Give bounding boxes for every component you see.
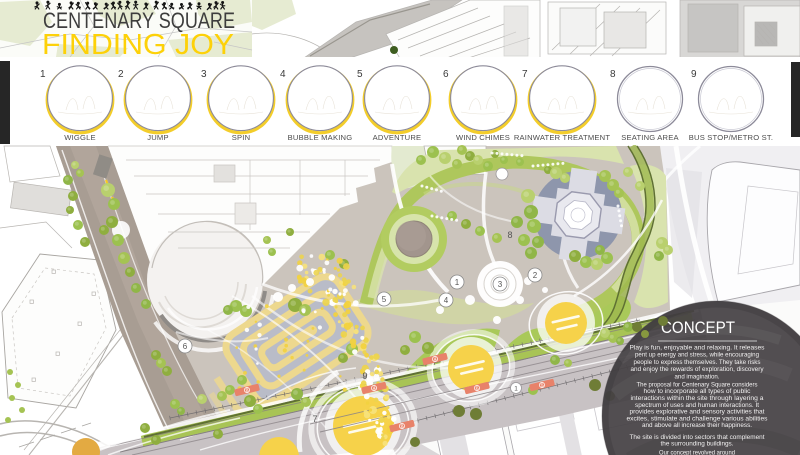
- svg-text:and imagination.: and imagination.: [675, 373, 720, 380]
- svg-text:1: 1: [514, 386, 518, 393]
- svg-text:7: 7: [312, 414, 317, 424]
- svg-text:1: 1: [40, 69, 46, 80]
- svg-text:SEATING AREA: SEATING AREA: [621, 133, 679, 142]
- svg-text:RAINWATER TREATMENT: RAINWATER TREATMENT: [514, 133, 610, 142]
- svg-text:and above all increase their h: and above all increase their happiness.: [642, 422, 752, 429]
- svg-text:1: 1: [455, 278, 460, 287]
- svg-text:JUMP: JUMP: [147, 133, 168, 142]
- svg-text:BUS STOP/METRO ST.: BUS STOP/METRO ST.: [689, 133, 773, 142]
- svg-text:Our concept revolved around: Our concept revolved around: [659, 450, 735, 455]
- svg-text:6: 6: [443, 69, 449, 80]
- svg-text:CONCEPT: CONCEPT: [661, 318, 735, 337]
- svg-text:pent up energy and stress, whi: pent up energy and stress, while encoura…: [635, 352, 759, 359]
- svg-text:WIND CHIMES: WIND CHIMES: [456, 133, 510, 142]
- svg-text:2: 2: [533, 271, 538, 280]
- svg-text:8: 8: [507, 230, 512, 240]
- svg-text:3: 3: [498, 280, 503, 289]
- svg-text:9: 9: [691, 69, 697, 80]
- svg-text:SPIN: SPIN: [232, 133, 251, 142]
- svg-text:WIGGLE: WIGGLE: [64, 133, 96, 142]
- svg-text:6: 6: [183, 342, 188, 351]
- svg-text:9: 9: [362, 371, 367, 381]
- svg-text:BUBBLE MAKING: BUBBLE MAKING: [288, 133, 353, 142]
- svg-text:4: 4: [444, 296, 449, 305]
- svg-text:Play is fun, enjoyable and rel: Play is fun, enjoyable and relaxing. It …: [630, 345, 766, 352]
- svg-text:ADVENTURE: ADVENTURE: [373, 133, 422, 142]
- svg-text:FINDING JOY: FINDING JOY: [42, 29, 234, 61]
- svg-text:7: 7: [522, 69, 528, 80]
- svg-text:5: 5: [357, 69, 363, 80]
- svg-text:5: 5: [382, 295, 387, 304]
- svg-text:and enjoy the rewards of explo: and enjoy the rewards of exploration, di…: [631, 366, 765, 373]
- svg-text:3: 3: [201, 69, 207, 80]
- svg-text:the surrounding buildings.: the surrounding buildings.: [661, 441, 734, 448]
- svg-text:8: 8: [610, 69, 616, 80]
- svg-text:2: 2: [118, 69, 124, 80]
- svg-text:4: 4: [280, 69, 286, 80]
- svg-text:people to express themselves.: people to express themselves. They take …: [634, 359, 762, 366]
